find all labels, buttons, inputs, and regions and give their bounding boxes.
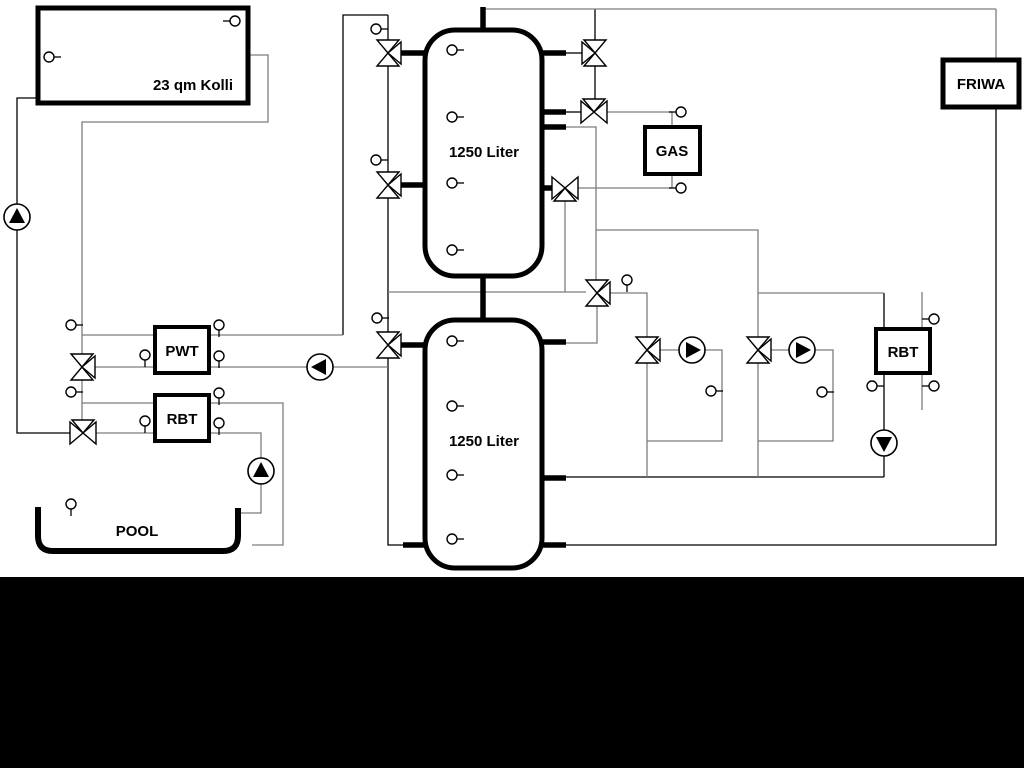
collector-label: 23 qm Kolli	[153, 77, 233, 94]
gas-label: GAS	[656, 143, 689, 160]
pwt-label: PWT	[165, 343, 198, 360]
sensor-port	[867, 381, 877, 391]
sensor-port	[66, 320, 76, 330]
sensor-port	[371, 155, 381, 165]
tank1-label: 1250 Liter	[449, 144, 519, 161]
sensor-port	[140, 350, 150, 360]
tank2-label: 1250 Liter	[449, 433, 519, 450]
sensor-port	[447, 245, 457, 255]
sensor-port	[622, 275, 632, 285]
sensor-port	[372, 313, 382, 323]
sensor-port	[214, 351, 224, 361]
sensor-port	[214, 320, 224, 330]
sensor-port	[371, 24, 381, 34]
sensor-port	[214, 388, 224, 398]
sensor-port	[66, 387, 76, 397]
pool-label: POOL	[116, 523, 159, 540]
sensor-port	[447, 470, 457, 480]
sensor-port	[447, 112, 457, 122]
heating-system-schematic: 23 qm Kolli1250 Liter1250 LiterGASFRIWAP…	[0, 0, 1024, 768]
sensor-port	[929, 381, 939, 391]
sensor-port	[706, 386, 716, 396]
sensor-port	[676, 107, 686, 117]
rbt-right-label: RBT	[888, 344, 919, 361]
sensor-port	[447, 401, 457, 411]
sensor-port	[230, 16, 240, 26]
sensor-port	[66, 499, 76, 509]
sensor-port	[447, 336, 457, 346]
schematic-canvas: 23 qm Kolli1250 Liter1250 LiterGASFRIWAP…	[0, 0, 1024, 768]
sensor-port	[44, 52, 54, 62]
sensor-port	[447, 534, 457, 544]
sensor-port	[676, 183, 686, 193]
rbt-left-label: RBT	[167, 411, 198, 428]
sensor-port	[929, 314, 939, 324]
sensor-port	[214, 418, 224, 428]
sensor-port	[447, 45, 457, 55]
sensor-port	[447, 178, 457, 188]
sensor-port	[140, 416, 150, 426]
friwa-label: FRIWA	[957, 76, 1005, 93]
bottom-black-band	[0, 577, 1024, 768]
sensor-port	[817, 387, 827, 397]
